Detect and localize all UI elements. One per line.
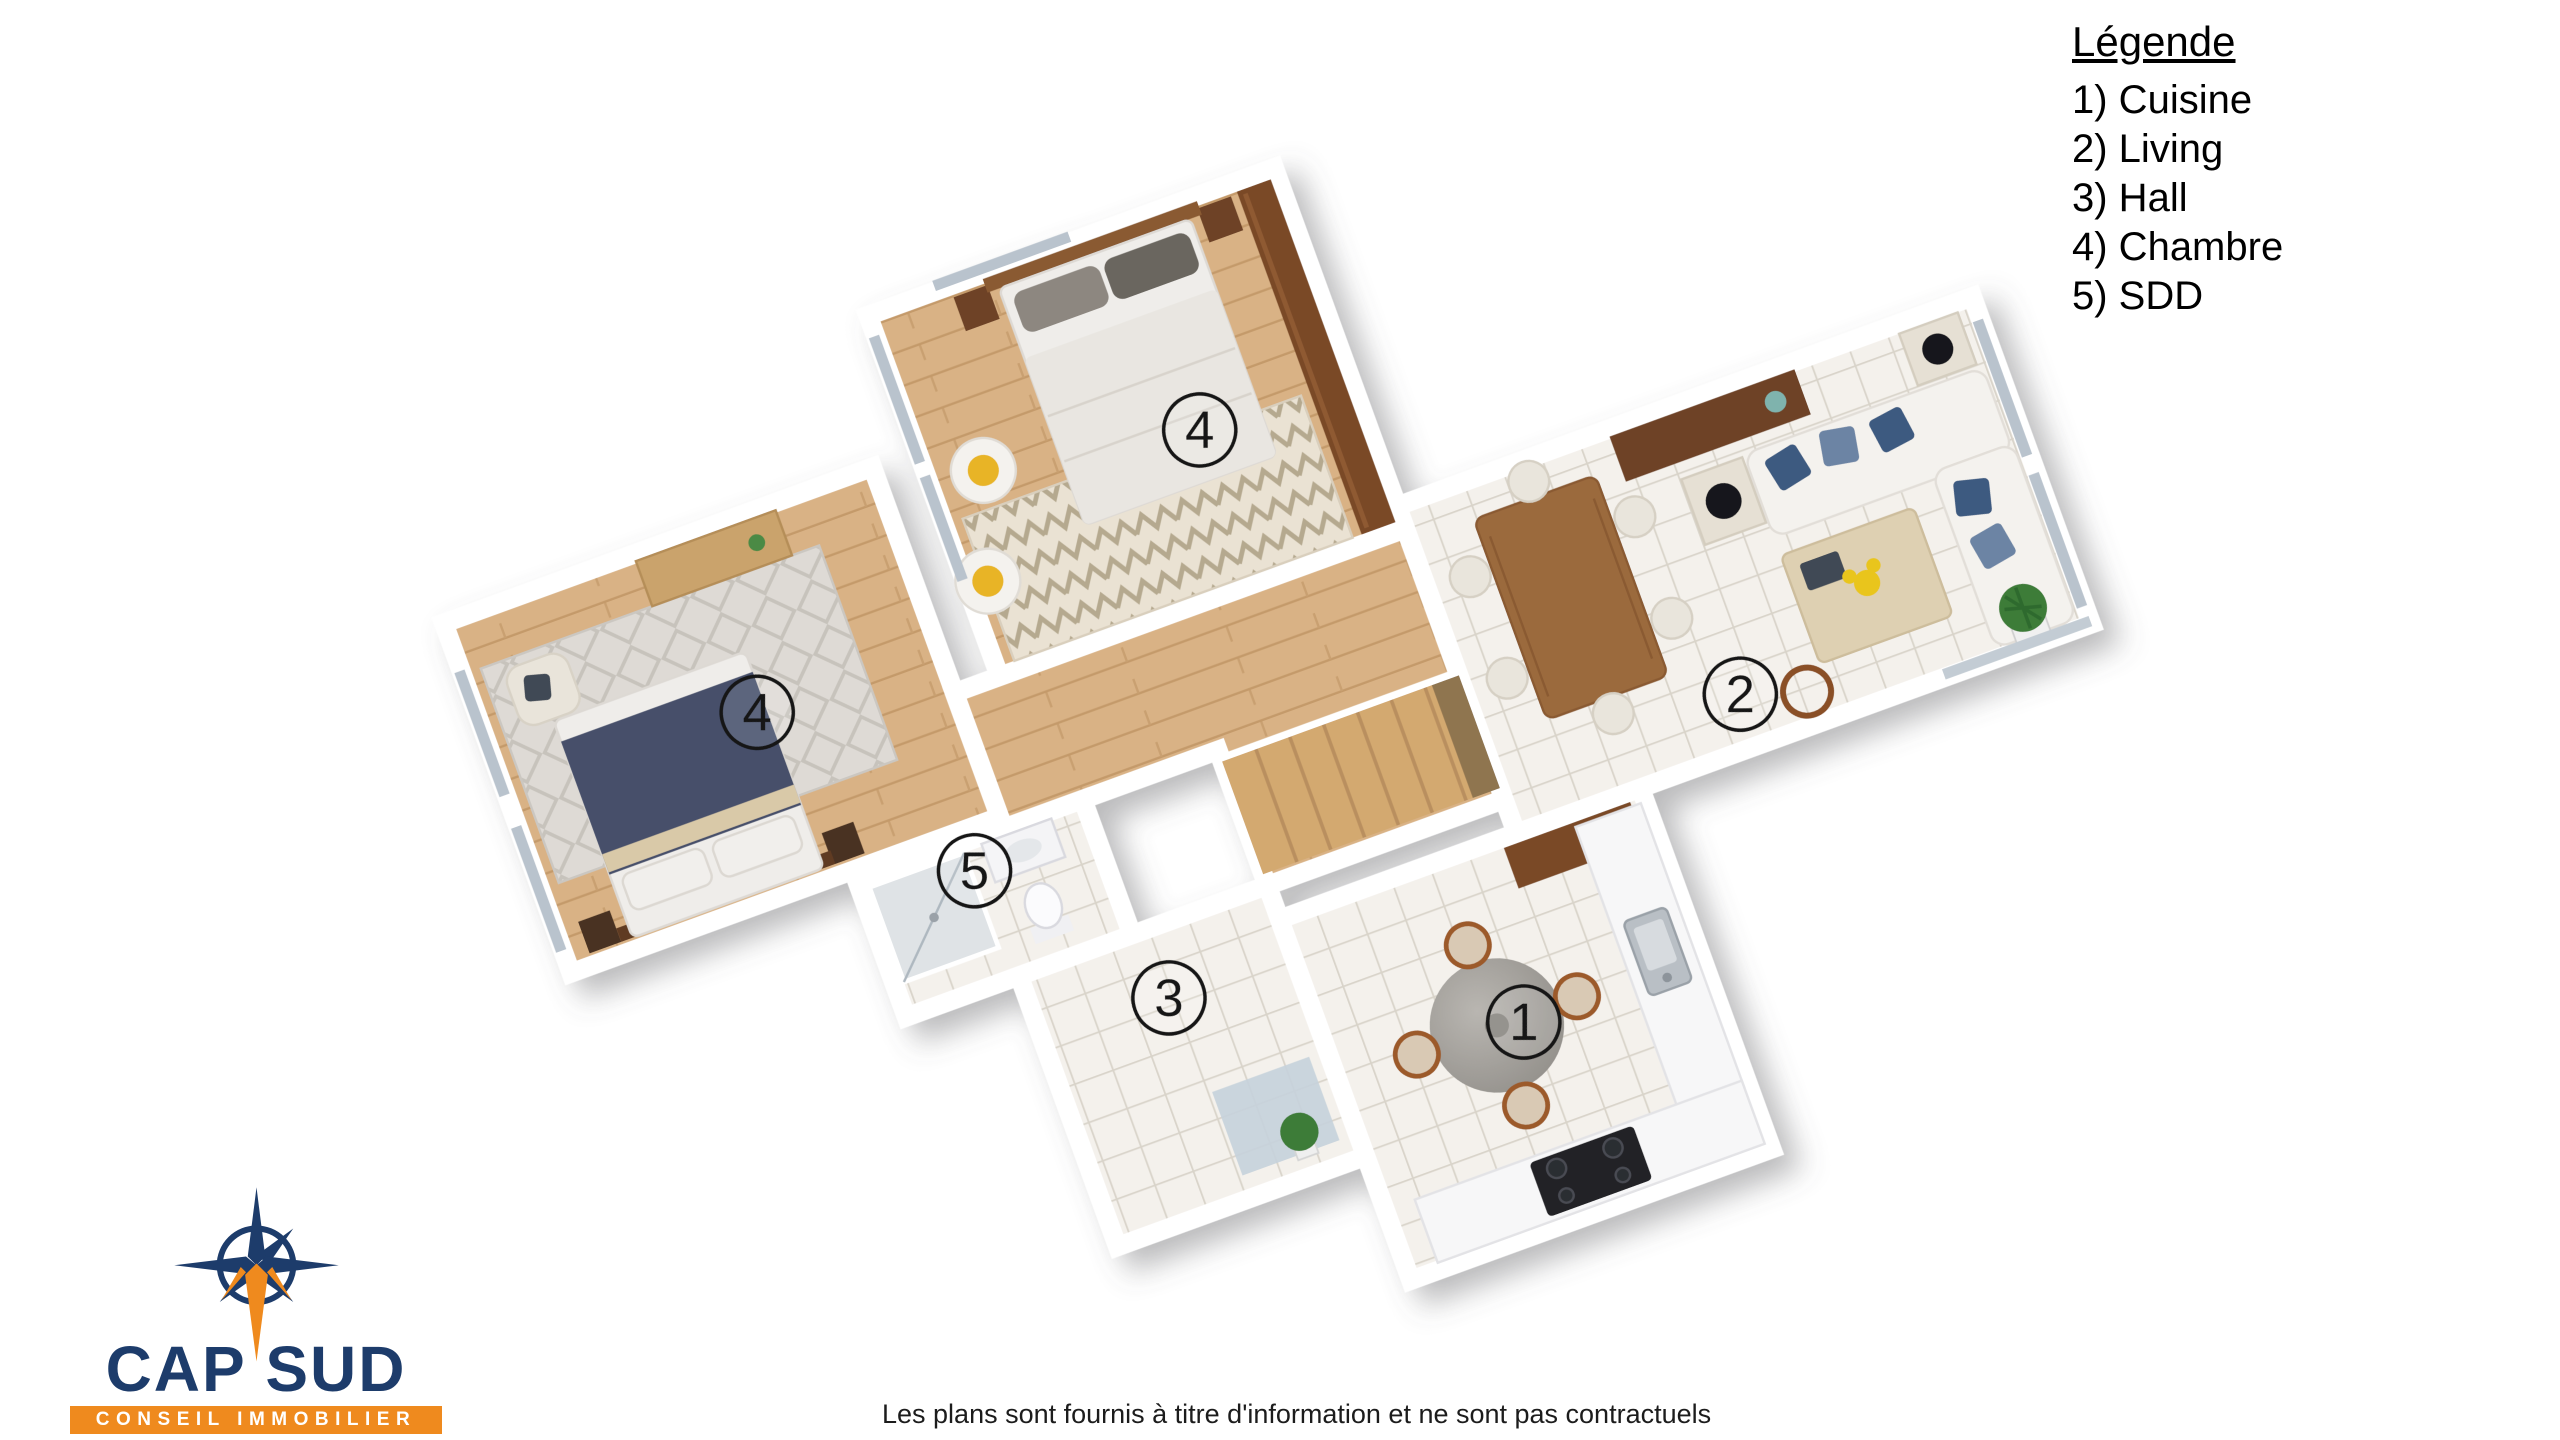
svg-text:5: 5: [960, 842, 989, 901]
brand-name: CAP SUD: [70, 1336, 442, 1403]
svg-text:4: 4: [1185, 401, 1214, 460]
legend-item-sdd: 5) SDD: [2072, 272, 2283, 321]
svg-text:1: 1: [1509, 993, 1538, 1052]
svg-text:3: 3: [1154, 969, 1183, 1028]
svg-text:2: 2: [1726, 665, 1755, 724]
brand-tagline: CONSEIL IMMOBILIER: [96, 1409, 416, 1431]
legend-list: 1) Cuisine 2) Living 3) Hall 4) Chambre …: [2072, 76, 2283, 321]
legend-item-cuisine: 1) Cuisine: [2072, 76, 2283, 125]
legend-title: Légende: [2072, 18, 2283, 66]
legend-item-chambre: 4) Chambre: [2072, 223, 2283, 272]
brand-tagline-bar: CONSEIL IMMOBILIER: [70, 1406, 442, 1434]
svg-text:4: 4: [743, 683, 772, 742]
brand-logo: CAP SUD CONSEIL IMMOBILIER: [70, 1182, 442, 1434]
legend-item-hall: 3) Hall: [2072, 174, 2283, 223]
legend: Légende 1) Cuisine 2) Living 3) Hall 4) …: [2072, 18, 2283, 321]
legend-item-living: 2) Living: [2072, 125, 2283, 174]
disclaimer-text: Les plans sont fournis à titre d'informa…: [882, 1399, 1711, 1430]
